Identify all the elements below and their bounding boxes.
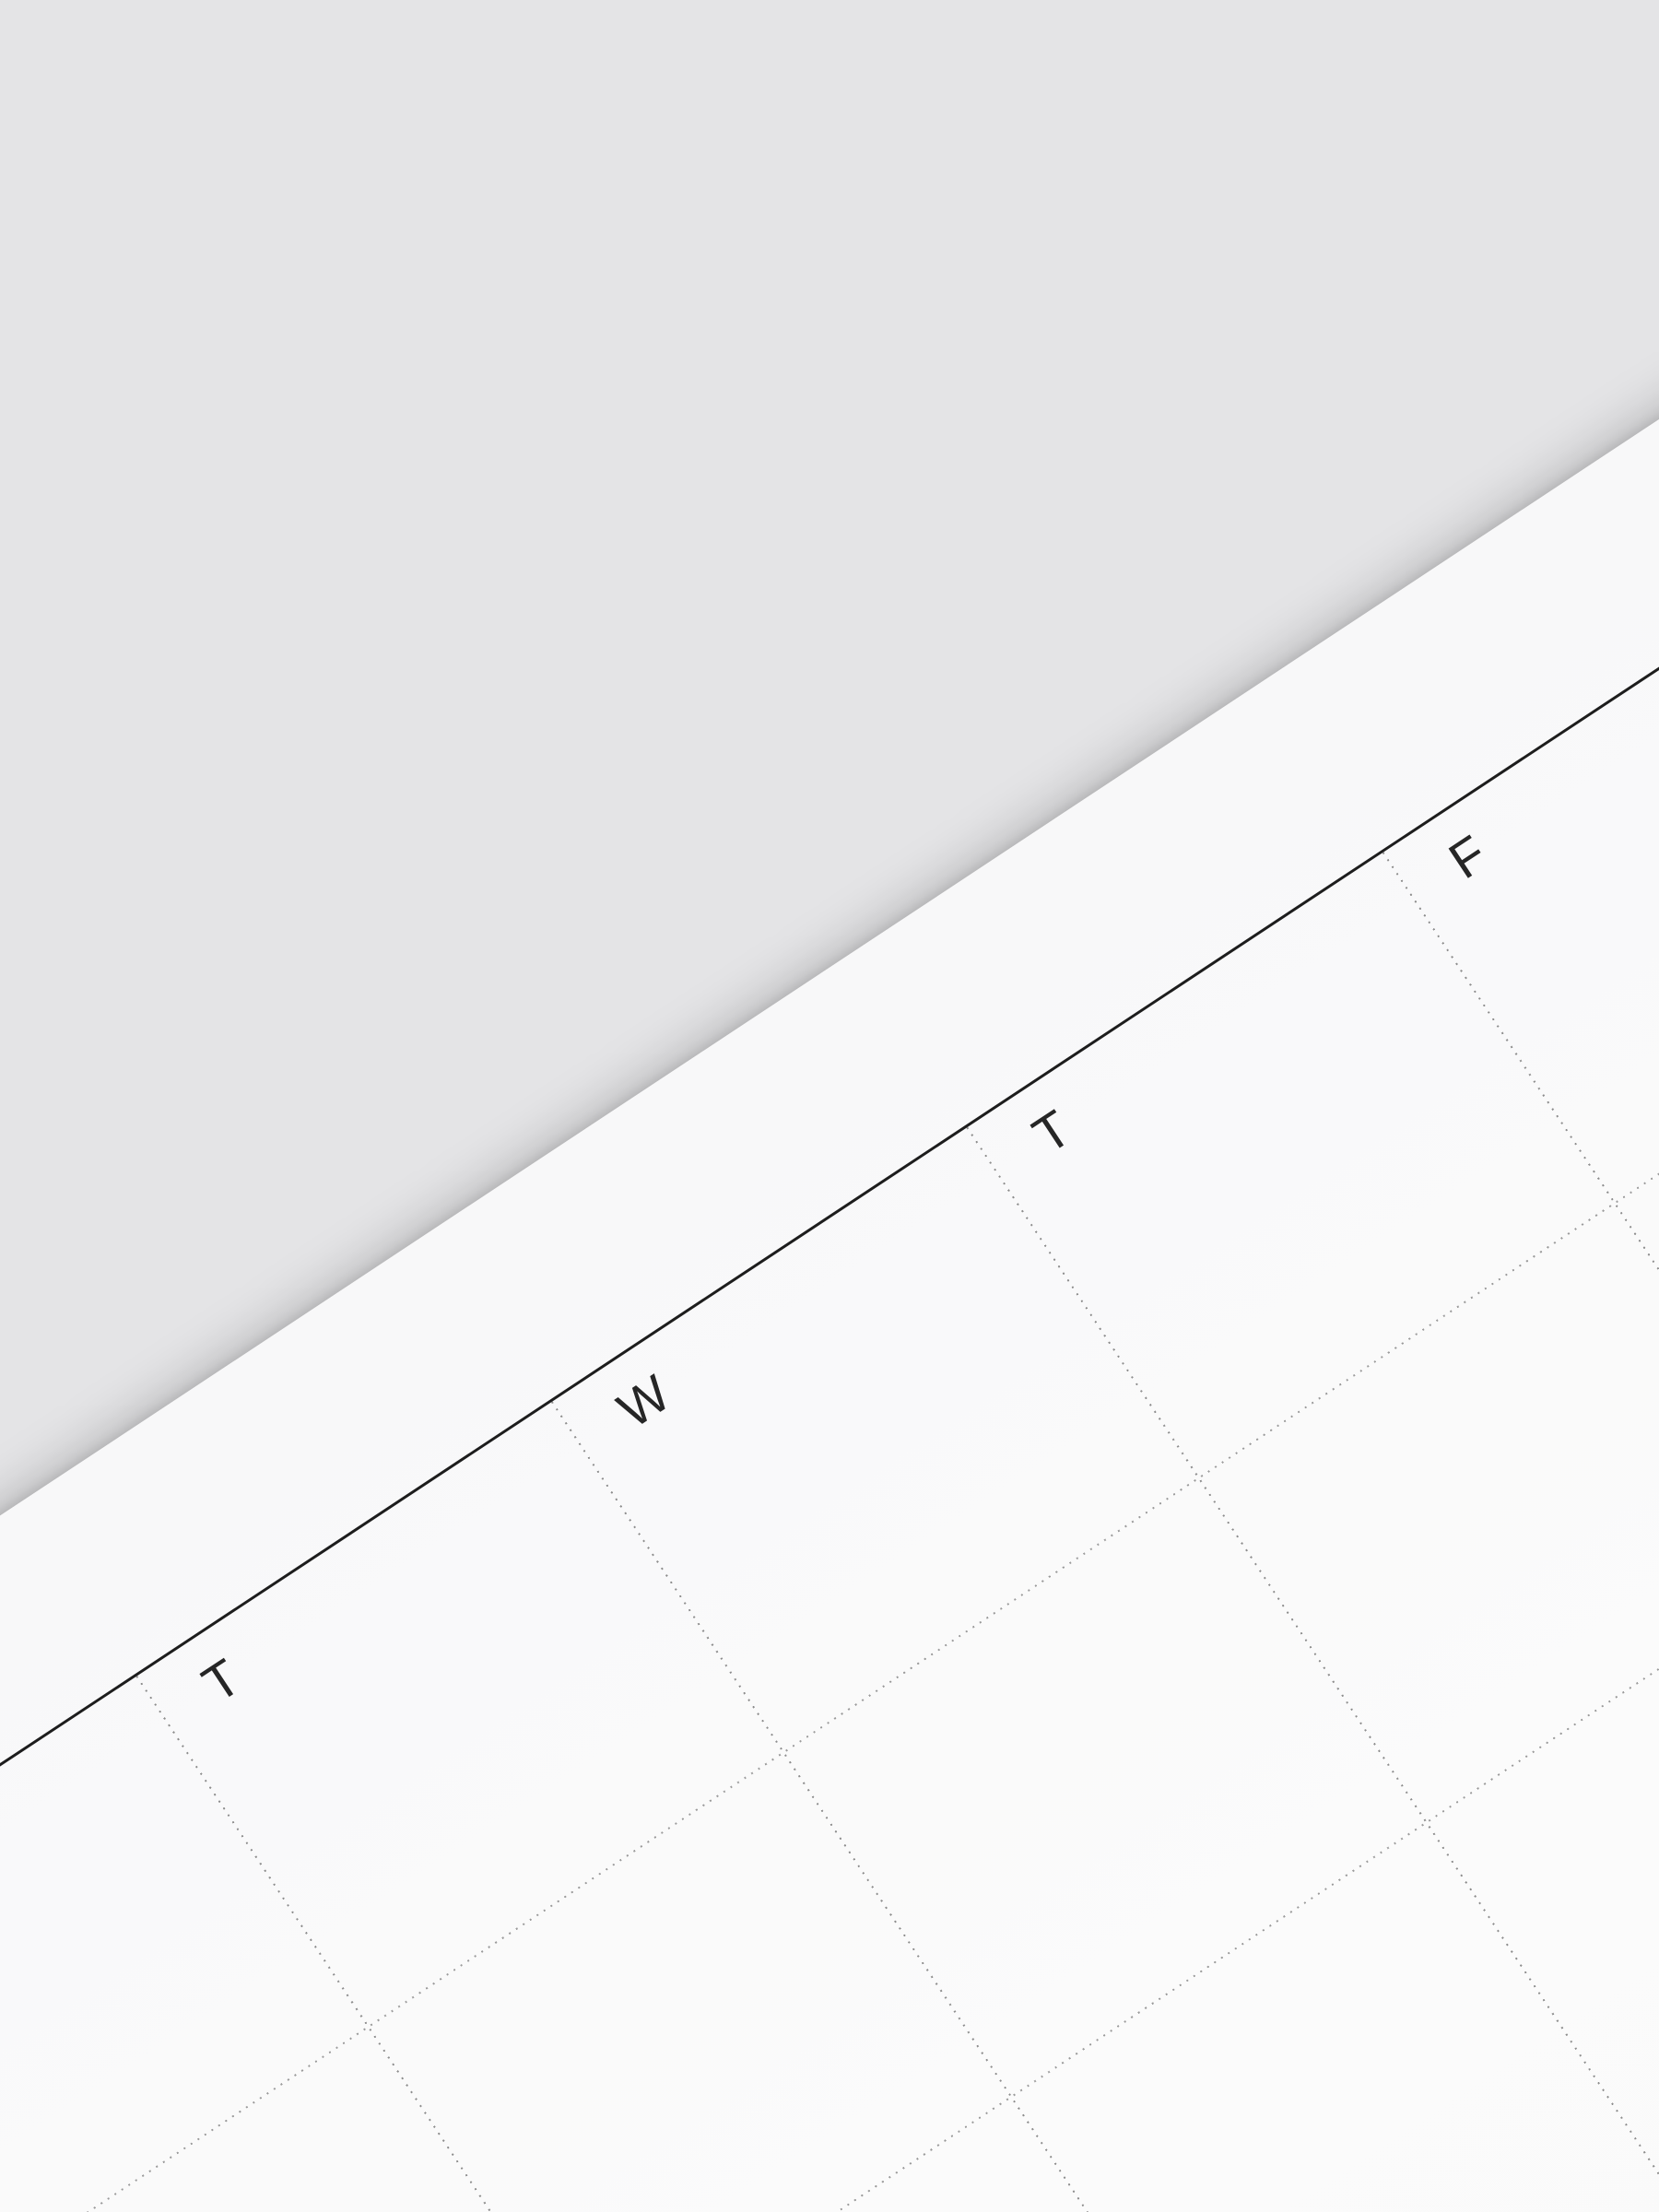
column-separator-dotted bbox=[135, 1676, 1088, 2212]
day-header-letter-friday: F bbox=[1441, 827, 1495, 888]
day-header-letter-thursday: T bbox=[1025, 1101, 1079, 1162]
day-header-letter-wednesday: W bbox=[609, 1367, 678, 1437]
column-separator-dotted bbox=[551, 1401, 1504, 2212]
planner-paper-sheet: T W T F bbox=[0, 92, 1659, 2212]
photo-scene: T W T F bbox=[0, 0, 1659, 2212]
week-row-separator-dotted bbox=[113, 961, 1659, 2212]
day-header-letter-tuesday: T bbox=[194, 1651, 249, 1712]
calendar-header-rule bbox=[0, 265, 1659, 1994]
column-separator-dotted bbox=[1382, 852, 1659, 2212]
week-row-separator-dotted bbox=[0, 617, 1659, 2212]
column-separator-dotted bbox=[966, 1127, 1659, 2212]
